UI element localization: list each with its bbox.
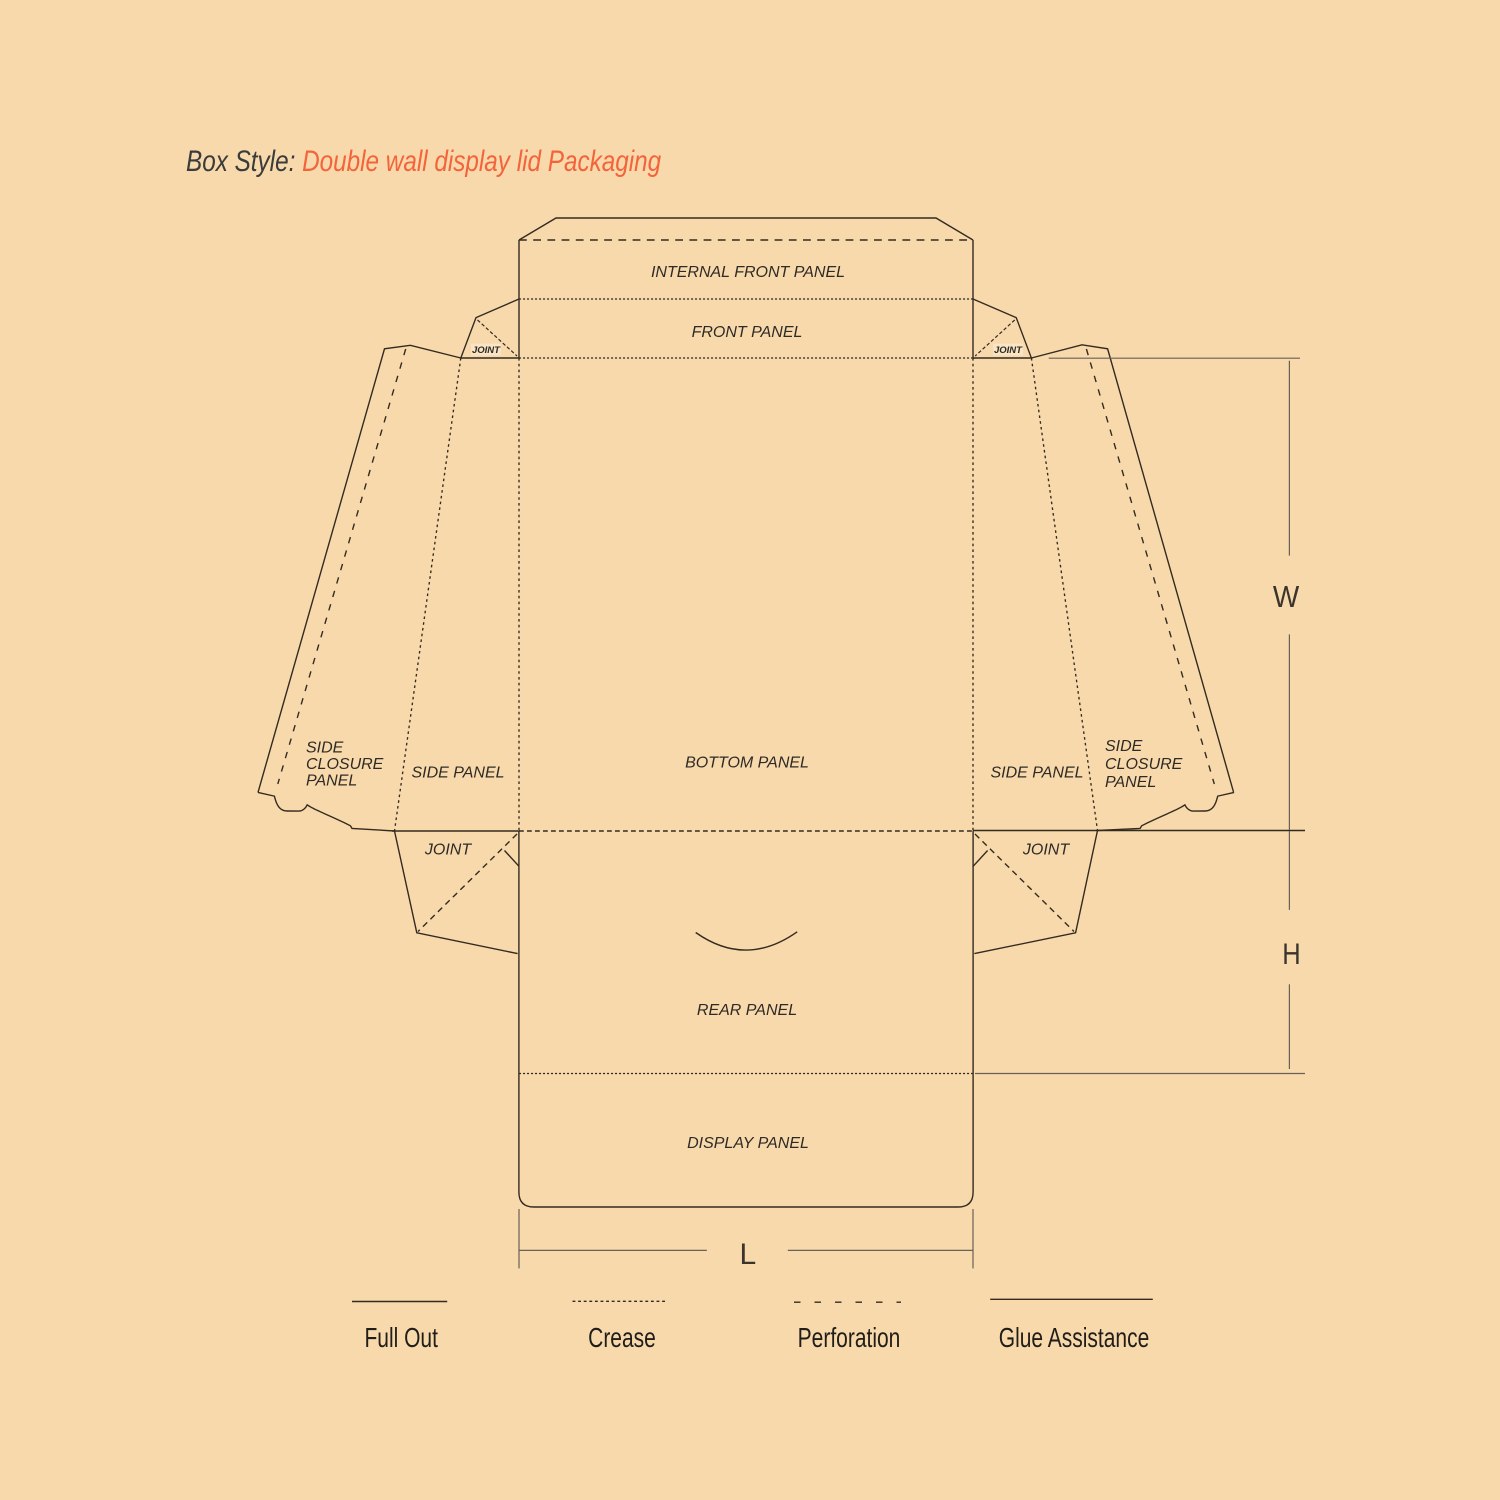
svg-text:W: W: [1273, 580, 1299, 615]
svg-text:JOINT: JOINT: [424, 842, 472, 859]
svg-text:Full Out: Full Out: [364, 1323, 438, 1354]
svg-text:CLOSURE: CLOSURE: [1105, 756, 1183, 773]
svg-text:SIDE: SIDE: [306, 740, 344, 757]
svg-text:SIDE: SIDE: [1105, 738, 1143, 755]
svg-text:DISPLAY PANEL: DISPLAY PANEL: [687, 1135, 809, 1152]
svg-text:REAR PANEL: REAR PANEL: [697, 1002, 797, 1019]
svg-text:Box Style: Double wall display: Box Style: Double wall display lid Packa…: [186, 144, 661, 178]
svg-text:JOINT: JOINT: [1022, 842, 1070, 859]
svg-text:L: L: [739, 1238, 756, 1271]
svg-text:SIDE PANEL: SIDE PANEL: [411, 765, 504, 782]
svg-text:INTERNAL FRONT PANEL: INTERNAL FRONT PANEL: [651, 264, 845, 281]
svg-text:JOINT: JOINT: [994, 345, 1023, 356]
svg-text:PANEL: PANEL: [1105, 774, 1156, 791]
svg-text:Perforation: Perforation: [798, 1323, 901, 1354]
svg-text:Glue Assistance: Glue Assistance: [999, 1323, 1149, 1354]
svg-text:H: H: [1282, 937, 1300, 970]
svg-text:JOINT: JOINT: [472, 345, 501, 356]
svg-text:FRONT PANEL: FRONT PANEL: [692, 324, 803, 341]
svg-text:SIDE PANEL: SIDE PANEL: [990, 765, 1083, 782]
svg-text:Crease: Crease: [588, 1323, 656, 1354]
svg-text:BOTTOM PANEL: BOTTOM PANEL: [685, 755, 809, 772]
svg-text:CLOSURE: CLOSURE: [306, 756, 384, 773]
svg-text:PANEL: PANEL: [306, 773, 357, 790]
